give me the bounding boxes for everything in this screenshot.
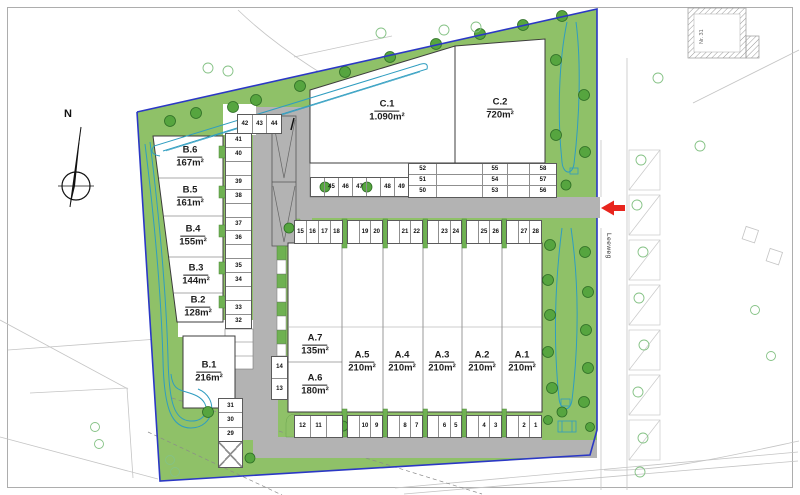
parking-group-19-20: 1920 bbox=[347, 220, 383, 244]
parking-group-25-26: 2526 bbox=[466, 220, 502, 244]
parking-space-empty bbox=[226, 287, 251, 301]
unit-label-b1: B.1216m² bbox=[195, 360, 222, 385]
parking-space-11: 11 bbox=[311, 416, 327, 437]
parking-table-50-58: 525558515457505356 bbox=[408, 163, 557, 198]
parking-space-empty bbox=[507, 221, 519, 243]
parking-space-21: 21 bbox=[400, 221, 412, 243]
parking-group-11-12: 1211 bbox=[294, 415, 343, 438]
unit-name: B.6 bbox=[178, 145, 203, 158]
parking-space-empty bbox=[467, 221, 479, 243]
unit-label-c1: C.11.090m² bbox=[369, 99, 404, 124]
compass-icon bbox=[58, 127, 94, 207]
parking-space-29: 29 bbox=[219, 428, 242, 441]
parking-space-empty bbox=[226, 245, 251, 259]
parking-space-38: 38 bbox=[226, 190, 251, 204]
parking-space-empty bbox=[508, 164, 530, 174]
parking-space-1: 1 bbox=[530, 416, 541, 437]
parking-group-3-4: 43 bbox=[466, 415, 502, 438]
unit-label-b3: B.3144m² bbox=[182, 263, 209, 288]
parking-space-34: 34 bbox=[226, 273, 251, 287]
parking-group-23-24: 2324 bbox=[427, 220, 462, 244]
parking-row-45-49: 4546474849 bbox=[310, 177, 409, 197]
parking-space-50: 50 bbox=[409, 186, 437, 196]
unit-area: 720m² bbox=[486, 110, 513, 122]
parking-space-empty bbox=[508, 175, 530, 185]
parking-space-4: 4 bbox=[479, 416, 491, 437]
parking-space-49: 49 bbox=[395, 178, 408, 196]
parking-space-35: 35 bbox=[226, 259, 251, 273]
unit-label-a2: A.2210m² bbox=[468, 350, 495, 375]
street-parking-bays bbox=[629, 150, 660, 460]
parking-space-3: 3 bbox=[490, 416, 501, 437]
parking-space-42: 42 bbox=[238, 115, 253, 133]
parking-space-24: 24 bbox=[451, 221, 461, 243]
parking-space-58: 58 bbox=[530, 164, 556, 174]
parking-space-33: 33 bbox=[226, 301, 251, 315]
unit-area: 180m² bbox=[301, 386, 328, 398]
parking-space-empty bbox=[437, 175, 482, 185]
parking-table-row: 515457 bbox=[409, 175, 556, 186]
parking-space-23: 23 bbox=[439, 221, 450, 243]
unit-area: 135m² bbox=[301, 346, 328, 358]
parking-space-empty bbox=[507, 416, 519, 437]
parking-space-17: 17 bbox=[319, 221, 331, 243]
parking-group-21-22: 2122 bbox=[387, 220, 423, 244]
parking-space-53: 53 bbox=[483, 186, 509, 196]
parking-space-55: 55 bbox=[483, 164, 509, 174]
parking-group-15-18: 15161718 bbox=[294, 220, 343, 244]
parking-space-14: 14 bbox=[272, 357, 287, 379]
unit-area: 216m² bbox=[195, 373, 222, 385]
parking-space-51: 51 bbox=[409, 175, 437, 185]
parking-space-12: 12 bbox=[295, 416, 311, 437]
parking-group-1-2: 21 bbox=[506, 415, 542, 438]
parking-space-empty bbox=[226, 162, 251, 176]
parking-column-a-west: 1413 bbox=[271, 356, 288, 400]
parking-space-32: 32 bbox=[226, 315, 251, 328]
unit-name: B.4 bbox=[181, 224, 206, 237]
parking-group-5-6: 65 bbox=[427, 415, 462, 438]
parking-space-10: 10 bbox=[360, 416, 372, 437]
unit-name: B.3 bbox=[184, 263, 209, 276]
parking-space-empty bbox=[311, 178, 325, 196]
parking-space-15: 15 bbox=[295, 221, 307, 243]
unit-name: B.5 bbox=[178, 185, 203, 198]
parking-space-9: 9 bbox=[371, 416, 382, 437]
parking-space-16: 16 bbox=[307, 221, 319, 243]
unit-area: 1.090m² bbox=[369, 112, 404, 124]
unit-name: C.1 bbox=[375, 99, 400, 112]
parking-space-empty bbox=[388, 221, 400, 243]
unit-name: B.2 bbox=[186, 295, 211, 308]
parking-space-44: 44 bbox=[267, 115, 281, 133]
parking-space-18: 18 bbox=[331, 221, 342, 243]
parking-space-8: 8 bbox=[400, 416, 412, 437]
parking-space-13: 13 bbox=[272, 379, 287, 400]
unit-label-b6: B.6167m² bbox=[176, 145, 203, 170]
unit-area: 210m² bbox=[428, 363, 455, 375]
parking-space-26: 26 bbox=[490, 221, 501, 243]
parking-space-28: 28 bbox=[530, 221, 541, 243]
unit-name: A.4 bbox=[390, 350, 415, 363]
parking-column-b1: 313029 bbox=[218, 398, 243, 442]
unit-area: 144m² bbox=[182, 276, 209, 288]
unit-label-b4: B.4155m² bbox=[179, 224, 206, 249]
parking-space-empty bbox=[226, 204, 251, 218]
unit-area: 155m² bbox=[179, 237, 206, 249]
unit-name: A.3 bbox=[430, 350, 455, 363]
unit-label-c2: C.2720m² bbox=[486, 97, 513, 122]
parking-group-7-8: 87 bbox=[387, 415, 423, 438]
unit-label-a4: A.4210m² bbox=[388, 350, 415, 375]
parking-space-39: 39 bbox=[226, 176, 251, 190]
parking-row-42-44: 424344 bbox=[237, 114, 282, 134]
parking-space-22: 22 bbox=[411, 221, 422, 243]
parking-space-7: 7 bbox=[411, 416, 422, 437]
parking-space-empty bbox=[508, 186, 530, 196]
parking-column-b: 41403938373635343332 bbox=[225, 133, 252, 329]
parking-space-25: 25 bbox=[479, 221, 491, 243]
unit-label-a5: A.5210m² bbox=[348, 350, 375, 375]
parking-space-46: 46 bbox=[339, 178, 353, 196]
unit-label-a7: A.7135m² bbox=[301, 333, 328, 358]
parking-space-36: 36 bbox=[226, 231, 251, 245]
parking-space-empty bbox=[437, 186, 482, 196]
parking-space-5: 5 bbox=[451, 416, 461, 437]
unit-area: 167m² bbox=[176, 158, 203, 170]
parking-space-41: 41 bbox=[226, 134, 251, 148]
parking-space-empty bbox=[388, 416, 400, 437]
street-name-label: Leeweg bbox=[605, 233, 612, 259]
parking-space-20: 20 bbox=[371, 221, 382, 243]
unit-name: C.2 bbox=[488, 97, 513, 110]
unit-label-a6: A.6180m² bbox=[301, 373, 328, 398]
unit-name: A.1 bbox=[510, 350, 535, 363]
unit-name: A.5 bbox=[350, 350, 375, 363]
parking-space-56: 56 bbox=[530, 186, 556, 196]
parking-space-37: 37 bbox=[226, 218, 251, 232]
parking-space-30: 30 bbox=[219, 413, 242, 427]
parking-space-43: 43 bbox=[253, 115, 268, 133]
unit-label-a3: A.3210m² bbox=[428, 350, 455, 375]
parking-space-45: 45 bbox=[325, 178, 339, 196]
compass-north-label: N bbox=[64, 108, 72, 120]
parking-space-empty bbox=[428, 221, 439, 243]
parking-space-40: 40 bbox=[226, 148, 251, 162]
unit-name: A.7 bbox=[303, 333, 328, 346]
neighbor-building-label: Nr. 31 bbox=[699, 29, 705, 44]
unit-area: 161m² bbox=[176, 198, 203, 210]
parking-space-empty bbox=[367, 178, 381, 196]
site-plan: N Leeweg Nr. 31 B.6167m² B.5161m² B.4155… bbox=[0, 0, 800, 495]
parking-space-48: 48 bbox=[381, 178, 395, 196]
parking-space-57: 57 bbox=[530, 175, 556, 185]
parking-space-47: 47 bbox=[353, 178, 367, 196]
parking-space-empty bbox=[348, 221, 360, 243]
parking-space-empty bbox=[348, 416, 360, 437]
parking-table-row: 505356 bbox=[409, 186, 556, 196]
parking-space-empty bbox=[327, 416, 342, 437]
parking-space-54: 54 bbox=[483, 175, 509, 185]
unit-name: A.2 bbox=[470, 350, 495, 363]
parking-space-empty bbox=[437, 164, 482, 174]
parking-space-31: 31 bbox=[219, 399, 242, 413]
parking-space-empty bbox=[428, 416, 439, 437]
unit-area: 210m² bbox=[348, 363, 375, 375]
unit-area: 128m² bbox=[184, 308, 211, 320]
parking-table-row: 525558 bbox=[409, 164, 556, 175]
unit-area: 210m² bbox=[508, 363, 535, 375]
unit-area: 210m² bbox=[468, 363, 495, 375]
parking-space-27: 27 bbox=[519, 221, 531, 243]
unit-label-b5: B.5161m² bbox=[176, 185, 203, 210]
parking-space-52: 52 bbox=[409, 164, 437, 174]
parking-group-27-28: 2728 bbox=[506, 220, 542, 244]
unit-area: 210m² bbox=[388, 363, 415, 375]
entrance-arrow-icon bbox=[601, 201, 625, 216]
parking-space-6: 6 bbox=[439, 416, 450, 437]
unit-label-b2: B.2128m² bbox=[184, 295, 211, 320]
parking-space-19: 19 bbox=[360, 221, 372, 243]
unit-name: A.6 bbox=[303, 373, 328, 386]
parking-space-2: 2 bbox=[519, 416, 531, 437]
no-parking-cell bbox=[218, 441, 243, 468]
parking-group-9-10: 109 bbox=[347, 415, 383, 438]
unit-name: B.1 bbox=[197, 360, 222, 373]
unit-label-a1: A.1210m² bbox=[508, 350, 535, 375]
parking-space-empty bbox=[467, 416, 479, 437]
